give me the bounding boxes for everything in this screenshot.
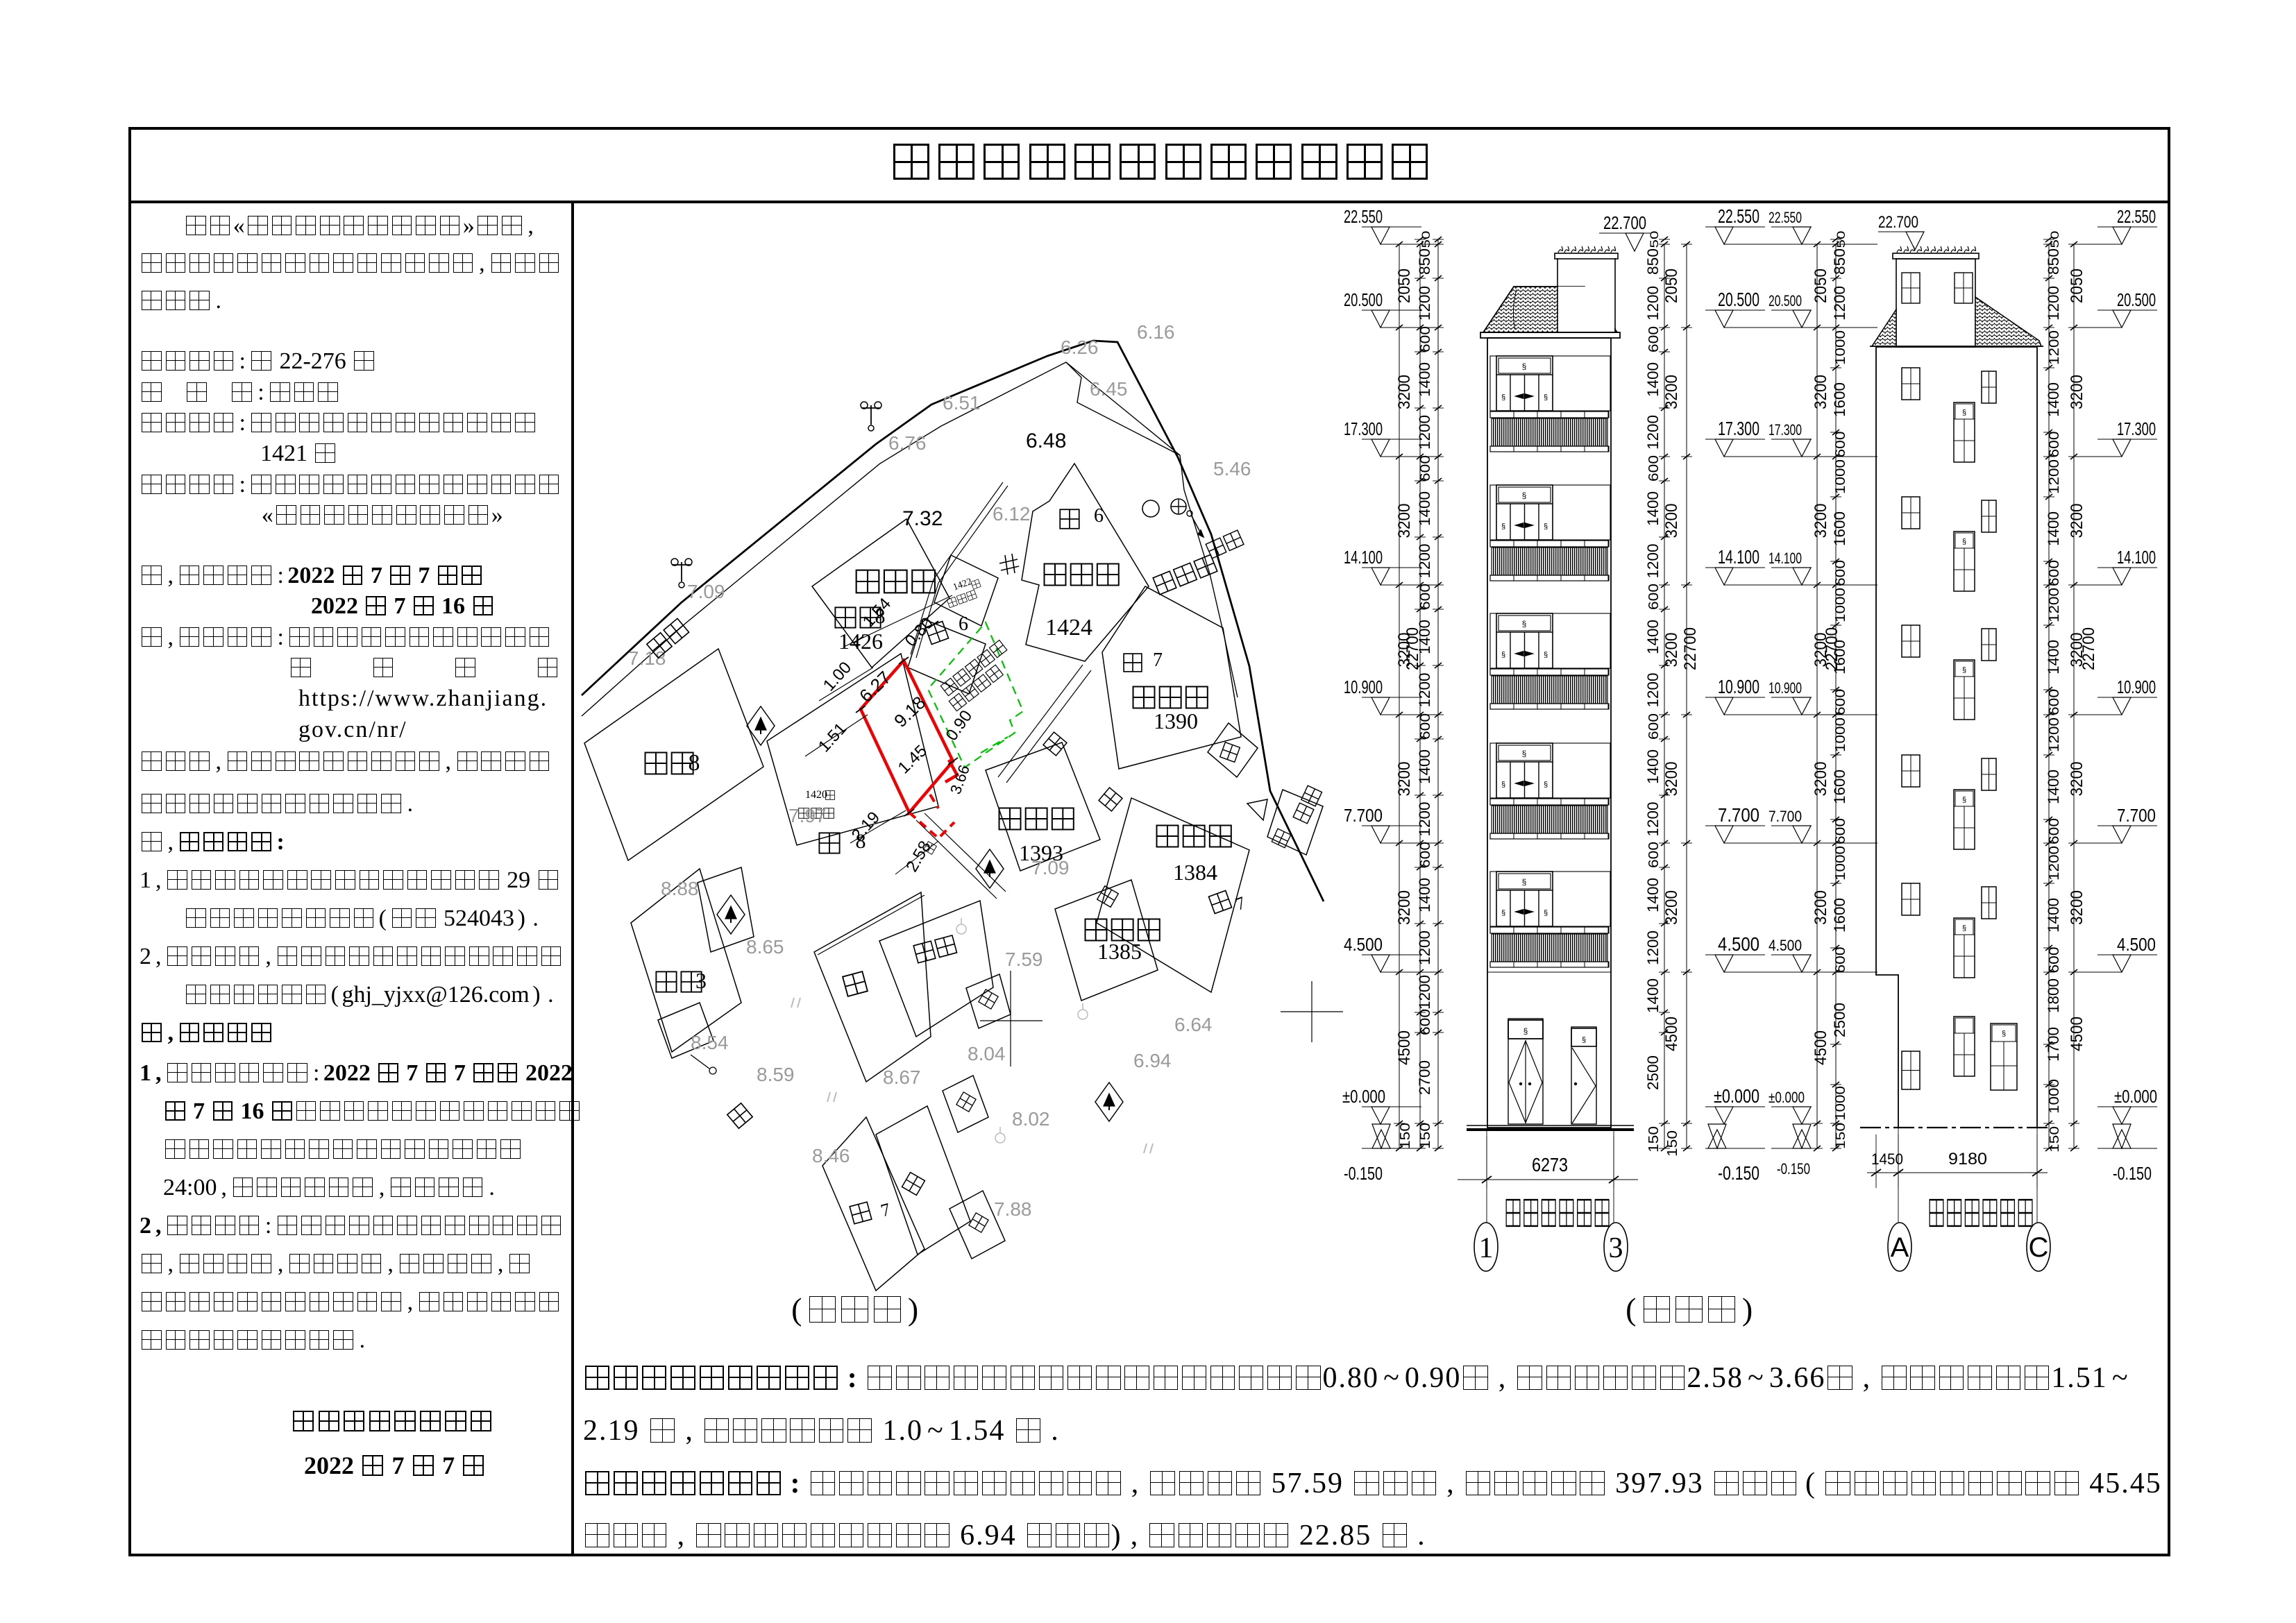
svg-text:3200: 3200 bbox=[2068, 504, 2086, 538]
svg-text:7.18: 7.18 bbox=[628, 647, 666, 669]
svg-text:7.700: 7.700 bbox=[2117, 805, 2156, 826]
svg-text:600: 600 bbox=[2047, 689, 2062, 715]
svg-text:600: 600 bbox=[1646, 713, 1662, 740]
svg-text:17.300: 17.300 bbox=[2117, 418, 2156, 439]
svg-text:1400: 1400 bbox=[2045, 770, 2062, 804]
svg-text:1000: 1000 bbox=[2047, 1079, 2062, 1114]
svg-text:22.700: 22.700 bbox=[1878, 213, 1918, 232]
svg-text:3: 3 bbox=[695, 968, 707, 993]
svg-text:2050: 2050 bbox=[1812, 269, 1830, 303]
svg-text:1200: 1200 bbox=[1644, 544, 1662, 579]
svg-text:§: § bbox=[2002, 1030, 2006, 1038]
svg-text:±0.000: ±0.000 bbox=[1769, 1089, 1805, 1106]
svg-text:1200: 1200 bbox=[1644, 673, 1662, 708]
svg-text:2.58: 2.58 bbox=[902, 838, 935, 875]
svg-text:8.88: 8.88 bbox=[661, 878, 699, 899]
svg-text:22700: 22700 bbox=[2079, 627, 2098, 670]
svg-text:50: 50 bbox=[1648, 231, 1661, 248]
svg-text:6.16: 6.16 bbox=[1137, 321, 1175, 343]
svg-text:6.51: 6.51 bbox=[943, 392, 981, 414]
svg-text:600: 600 bbox=[1646, 455, 1662, 482]
svg-text:20.500: 20.500 bbox=[1344, 289, 1383, 310]
svg-text:-0.150: -0.150 bbox=[2113, 1163, 2152, 1184]
svg-text:3: 3 bbox=[1609, 1232, 1623, 1264]
svg-text:§: § bbox=[1501, 651, 1505, 659]
svg-text:50: 50 bbox=[1419, 231, 1433, 248]
svg-text:22.550: 22.550 bbox=[1769, 209, 1802, 226]
svg-text:§: § bbox=[1544, 781, 1548, 789]
svg-text:6.76: 6.76 bbox=[888, 432, 927, 454]
svg-text:3200: 3200 bbox=[1395, 762, 1414, 797]
svg-text:600: 600 bbox=[1833, 689, 1848, 715]
svg-text:§: § bbox=[1522, 619, 1527, 629]
svg-text:8.54: 8.54 bbox=[691, 1032, 729, 1053]
svg-text:4.500: 4.500 bbox=[1344, 934, 1383, 955]
svg-text:150: 150 bbox=[2048, 1126, 2061, 1153]
svg-text:7: 7 bbox=[879, 1199, 893, 1221]
svg-text:1200: 1200 bbox=[2047, 846, 2062, 881]
svg-text:1400: 1400 bbox=[1644, 362, 1662, 397]
svg-text:1400: 1400 bbox=[1644, 620, 1662, 654]
svg-text:600: 600 bbox=[2047, 560, 2062, 586]
svg-text:600: 600 bbox=[1833, 560, 1848, 586]
svg-text:1200: 1200 bbox=[1416, 673, 1433, 708]
svg-text:17.300: 17.300 bbox=[1769, 421, 1802, 439]
svg-text:1200: 1200 bbox=[2047, 459, 2062, 494]
svg-text:7.32: 7.32 bbox=[902, 507, 943, 530]
svg-text:3200: 3200 bbox=[2068, 890, 2086, 925]
svg-text:150: 150 bbox=[1398, 1123, 1413, 1149]
svg-text:±0.000: ±0.000 bbox=[1714, 1085, 1759, 1107]
svg-text:17.300: 17.300 bbox=[1718, 418, 1759, 439]
svg-text:-0.150: -0.150 bbox=[1718, 1162, 1759, 1184]
svg-text:1400: 1400 bbox=[1416, 620, 1433, 654]
svg-text:1200: 1200 bbox=[1831, 286, 1848, 321]
svg-text:6: 6 bbox=[1094, 505, 1104, 527]
svg-text:150: 150 bbox=[1834, 1123, 1848, 1149]
svg-text:1.51: 1.51 bbox=[815, 720, 850, 756]
svg-text:§: § bbox=[1962, 796, 1966, 804]
svg-text:1200: 1200 bbox=[1416, 802, 1433, 837]
svg-text:7.88: 7.88 bbox=[994, 1198, 1032, 1220]
svg-text:§: § bbox=[1544, 522, 1548, 531]
svg-text:8.46: 8.46 bbox=[812, 1145, 850, 1166]
svg-text:-0.150: -0.150 bbox=[1777, 1160, 1810, 1178]
svg-text:§: § bbox=[1522, 877, 1527, 887]
svg-text:1400: 1400 bbox=[1416, 878, 1433, 912]
svg-text:§: § bbox=[1962, 409, 1966, 417]
svg-text:§: § bbox=[1522, 491, 1527, 500]
svg-text:2050: 2050 bbox=[1662, 269, 1681, 303]
svg-text:3200: 3200 bbox=[1662, 375, 1681, 409]
svg-text:1200: 1200 bbox=[1416, 286, 1433, 321]
svg-text:1390: 1390 bbox=[1154, 708, 1198, 733]
svg-text:1600: 1600 bbox=[1831, 511, 1848, 546]
svg-text:600: 600 bbox=[1833, 432, 1848, 458]
svg-text:1000: 1000 bbox=[1833, 459, 1848, 494]
svg-text:§: § bbox=[1544, 909, 1548, 917]
svg-text:1800: 1800 bbox=[2045, 978, 2062, 1013]
svg-text:10.900: 10.900 bbox=[1769, 679, 1802, 697]
svg-text:22.550: 22.550 bbox=[1344, 206, 1383, 227]
svg-text:600: 600 bbox=[1418, 584, 1433, 610]
svg-text:6.12: 6.12 bbox=[993, 503, 1031, 525]
svg-text:3200: 3200 bbox=[1395, 375, 1414, 409]
svg-text:-0.150: -0.150 bbox=[1344, 1163, 1383, 1184]
svg-text:1200: 1200 bbox=[2047, 588, 2062, 622]
svg-text:1000: 1000 bbox=[1833, 717, 1848, 752]
svg-text:2500: 2500 bbox=[1644, 1055, 1662, 1090]
svg-text:1420: 1420 bbox=[805, 789, 827, 801]
svg-text:1385: 1385 bbox=[1097, 939, 1142, 964]
svg-text:1200: 1200 bbox=[2047, 330, 2062, 365]
svg-text:1600: 1600 bbox=[1831, 382, 1848, 417]
svg-text:6.27: 6.27 bbox=[855, 667, 895, 706]
svg-text:7.700: 7.700 bbox=[1344, 805, 1383, 826]
svg-text:§: § bbox=[1501, 781, 1505, 789]
svg-text:4.500: 4.500 bbox=[2117, 934, 2156, 955]
svg-text:3200: 3200 bbox=[1662, 633, 1681, 668]
svg-text:6273: 6273 bbox=[1532, 1154, 1568, 1175]
svg-text:1422: 1422 bbox=[952, 577, 973, 593]
svg-text:§: § bbox=[1522, 362, 1527, 371]
svg-text:6.45: 6.45 bbox=[1090, 378, 1128, 400]
svg-text:1400: 1400 bbox=[1416, 749, 1433, 784]
svg-text:20.500: 20.500 bbox=[1769, 292, 1802, 309]
svg-text:7.97: 7.97 bbox=[788, 805, 827, 826]
svg-text:600: 600 bbox=[1418, 713, 1433, 740]
svg-text:1400: 1400 bbox=[2045, 511, 2062, 546]
svg-text:1700: 1700 bbox=[2045, 1027, 2062, 1062]
svg-text:850: 850 bbox=[1416, 248, 1433, 275]
svg-text:7: 7 bbox=[1233, 892, 1248, 915]
svg-text:C: C bbox=[2029, 1232, 2049, 1263]
svg-text:600: 600 bbox=[1833, 818, 1848, 844]
svg-text:1200: 1200 bbox=[1416, 544, 1433, 579]
svg-text:1000: 1000 bbox=[1833, 1086, 1848, 1121]
svg-text:150: 150 bbox=[1418, 1123, 1433, 1149]
svg-text:A: A bbox=[1891, 1232, 1909, 1263]
svg-text:1400: 1400 bbox=[1416, 491, 1433, 526]
svg-text:1400: 1400 bbox=[1644, 491, 1662, 526]
svg-text:600: 600 bbox=[1418, 842, 1433, 868]
svg-text:17.300: 17.300 bbox=[1344, 418, 1383, 439]
svg-text:600: 600 bbox=[1833, 947, 1848, 974]
svg-text:§: § bbox=[1962, 538, 1966, 546]
svg-text:7.700: 7.700 bbox=[1718, 804, 1759, 826]
svg-text:14.100: 14.100 bbox=[1769, 550, 1802, 567]
svg-text:3.66: 3.66 bbox=[947, 763, 973, 797]
svg-text:6.48: 6.48 bbox=[1026, 430, 1066, 452]
svg-text:850: 850 bbox=[2045, 248, 2062, 275]
svg-text:22.700: 22.700 bbox=[1603, 212, 1646, 233]
svg-text:14.100: 14.100 bbox=[1718, 546, 1759, 568]
svg-text:1000: 1000 bbox=[1833, 588, 1848, 622]
svg-text:1200: 1200 bbox=[1644, 415, 1662, 450]
svg-text:0.80: 0.80 bbox=[902, 614, 937, 651]
svg-text:§: § bbox=[1962, 666, 1966, 674]
svg-text:22.550: 22.550 bbox=[2117, 206, 2156, 227]
svg-text:3200: 3200 bbox=[1395, 504, 1414, 538]
svg-text:3200: 3200 bbox=[2068, 762, 2086, 797]
svg-text:1424: 1424 bbox=[1045, 615, 1092, 640]
svg-text:600: 600 bbox=[1418, 455, 1433, 482]
svg-text:7: 7 bbox=[1153, 649, 1163, 671]
svg-text:1400: 1400 bbox=[2045, 640, 2062, 674]
svg-text:1200: 1200 bbox=[2047, 717, 2062, 752]
svg-text:14.100: 14.100 bbox=[2117, 547, 2156, 568]
svg-text:4500: 4500 bbox=[1812, 1030, 1830, 1065]
svg-text:14.100: 14.100 bbox=[1344, 547, 1383, 568]
svg-text:§: § bbox=[1522, 749, 1527, 758]
svg-text:6.64: 6.64 bbox=[1174, 1014, 1213, 1035]
svg-text:600: 600 bbox=[2047, 432, 2062, 458]
svg-text:±0.000: ±0.000 bbox=[1342, 1086, 1385, 1107]
svg-text:1600: 1600 bbox=[1831, 898, 1848, 933]
svg-text:3200: 3200 bbox=[2068, 375, 2086, 409]
svg-text:600: 600 bbox=[2047, 818, 2062, 844]
svg-text:1.45: 1.45 bbox=[895, 742, 931, 778]
svg-text:9180: 9180 bbox=[1948, 1150, 1987, 1169]
svg-text:3200: 3200 bbox=[1662, 890, 1681, 925]
svg-text:§: § bbox=[1544, 651, 1548, 659]
svg-text:20.500: 20.500 bbox=[2117, 289, 2156, 310]
svg-text:1200: 1200 bbox=[2045, 286, 2062, 321]
svg-text:3200: 3200 bbox=[1812, 504, 1830, 538]
svg-text:600: 600 bbox=[1418, 326, 1433, 352]
svg-text:600: 600 bbox=[1646, 842, 1662, 868]
svg-text:3200: 3200 bbox=[1662, 762, 1681, 797]
svg-text:1400: 1400 bbox=[1644, 749, 1662, 784]
svg-text:10.900: 10.900 bbox=[2117, 677, 2156, 697]
svg-text:8.67: 8.67 bbox=[883, 1067, 921, 1088]
svg-text:3200: 3200 bbox=[1395, 890, 1414, 925]
svg-text:1600: 1600 bbox=[1831, 770, 1848, 804]
svg-text:1200: 1200 bbox=[1416, 415, 1433, 450]
svg-text:0.90: 0.90 bbox=[942, 707, 976, 745]
svg-text:4.500: 4.500 bbox=[1718, 933, 1759, 955]
svg-text:7.09: 7.09 bbox=[1031, 857, 1070, 878]
svg-text:2.19: 2.19 bbox=[848, 808, 884, 845]
svg-text:7.09: 7.09 bbox=[687, 581, 725, 602]
svg-text:3200: 3200 bbox=[1662, 504, 1681, 538]
svg-text:7.700: 7.700 bbox=[1769, 808, 1802, 825]
svg-text:1400: 1400 bbox=[1644, 878, 1662, 912]
svg-text:4500: 4500 bbox=[2068, 1017, 2086, 1051]
svg-text:2700: 2700 bbox=[1416, 1060, 1433, 1095]
svg-text:1200: 1200 bbox=[1416, 931, 1433, 965]
svg-text:8.59: 8.59 bbox=[757, 1064, 795, 1085]
svg-text:22.550: 22.550 bbox=[1718, 205, 1759, 227]
svg-text:1200: 1200 bbox=[1644, 802, 1662, 837]
svg-text:1: 1 bbox=[1479, 1232, 1494, 1264]
svg-text:600: 600 bbox=[2047, 947, 2062, 974]
svg-text:1400: 1400 bbox=[1644, 978, 1662, 1013]
svg-text:1.00: 1.00 bbox=[820, 658, 855, 695]
svg-text:3200: 3200 bbox=[1812, 762, 1830, 797]
svg-text:10.900: 10.900 bbox=[1344, 677, 1383, 697]
svg-text:50: 50 bbox=[1834, 231, 1848, 248]
svg-text:1200: 1200 bbox=[1644, 931, 1662, 965]
svg-text:±0.000: ±0.000 bbox=[2114, 1086, 2157, 1107]
svg-text:8.65: 8.65 bbox=[746, 936, 784, 958]
svg-text:600: 600 bbox=[1646, 326, 1662, 352]
svg-text:6.94: 6.94 bbox=[1133, 1050, 1172, 1071]
svg-text:850: 850 bbox=[1831, 248, 1848, 275]
svg-text:150: 150 bbox=[1646, 1126, 1662, 1153]
svg-text:2050: 2050 bbox=[1395, 269, 1414, 303]
svg-text:1000: 1000 bbox=[1833, 846, 1848, 881]
svg-text:850: 850 bbox=[1644, 248, 1662, 275]
svg-text:1400: 1400 bbox=[2045, 898, 2062, 933]
svg-text:4.500: 4.500 bbox=[1769, 937, 1802, 954]
svg-text:3200: 3200 bbox=[1812, 890, 1830, 925]
svg-text:1400: 1400 bbox=[1416, 362, 1433, 397]
svg-text:4500: 4500 bbox=[1662, 1017, 1681, 1051]
svg-text:1600: 1600 bbox=[1831, 640, 1848, 674]
svg-text:2500: 2500 bbox=[1831, 1003, 1848, 1037]
svg-text:1200: 1200 bbox=[1644, 286, 1662, 321]
svg-text:20.500: 20.500 bbox=[1718, 289, 1759, 310]
svg-text:§: § bbox=[1501, 522, 1505, 531]
svg-text:150: 150 bbox=[1665, 1130, 1680, 1157]
svg-text:1200: 1200 bbox=[1416, 975, 1433, 1010]
svg-text:8.04: 8.04 bbox=[968, 1043, 1006, 1064]
svg-text:600: 600 bbox=[1646, 584, 1662, 610]
svg-text:2050: 2050 bbox=[2068, 269, 2086, 303]
svg-text:8: 8 bbox=[689, 750, 700, 776]
svg-text:§: § bbox=[1544, 393, 1548, 402]
svg-text:§: § bbox=[1582, 1036, 1586, 1044]
svg-text:1000: 1000 bbox=[1833, 330, 1848, 365]
svg-text:600: 600 bbox=[1418, 1009, 1433, 1035]
svg-text:1384: 1384 bbox=[1173, 860, 1217, 885]
svg-text:22700: 22700 bbox=[1681, 627, 1700, 670]
svg-text:§: § bbox=[1523, 1026, 1528, 1036]
svg-text:4500: 4500 bbox=[1395, 1030, 1414, 1065]
svg-text:§: § bbox=[1501, 909, 1505, 917]
svg-text:5.46: 5.46 bbox=[1213, 458, 1251, 479]
svg-text:1400: 1400 bbox=[2045, 382, 2062, 417]
svg-text:§: § bbox=[1962, 924, 1966, 933]
svg-text:§: § bbox=[1501, 393, 1505, 402]
svg-text:10.900: 10.900 bbox=[1718, 676, 1759, 697]
svg-text:6: 6 bbox=[959, 613, 968, 635]
svg-text:6.26: 6.26 bbox=[1061, 337, 1099, 358]
svg-text:8.02: 8.02 bbox=[1012, 1108, 1050, 1130]
svg-text:7.59: 7.59 bbox=[1005, 949, 1043, 970]
svg-text:1426: 1426 bbox=[838, 629, 883, 654]
svg-text:3200: 3200 bbox=[1812, 375, 1830, 409]
svg-text:50: 50 bbox=[2048, 231, 2061, 248]
